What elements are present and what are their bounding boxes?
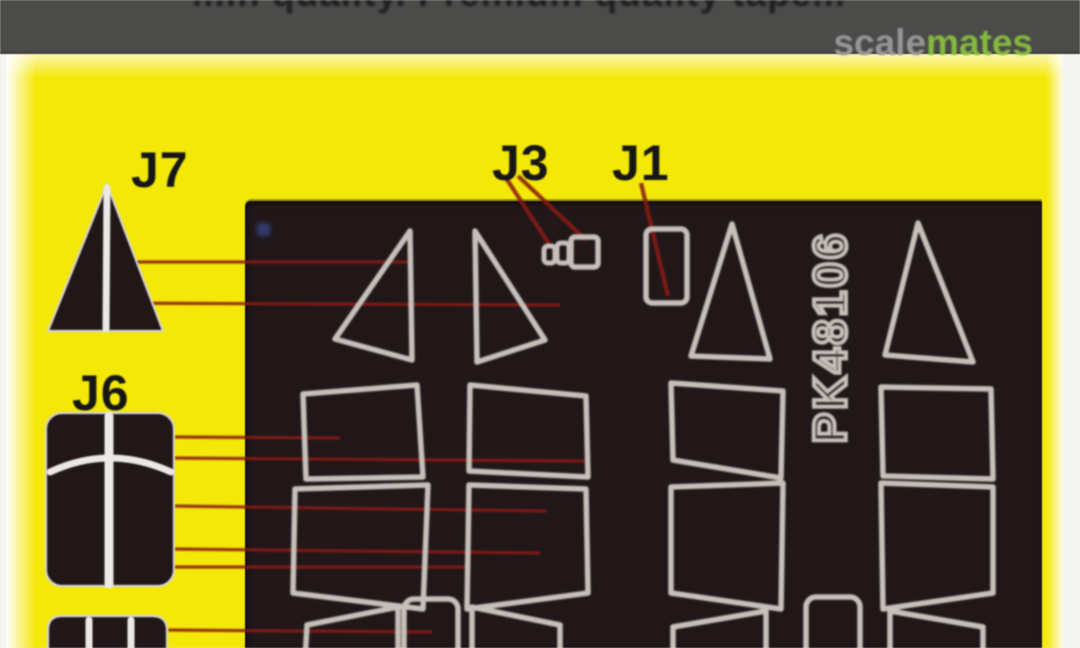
cropped-caption-text: ...in quality. Premium quality tape... [192,0,846,15]
masking-sheet-instruction-image: ...in quality. Premium quality tape... s… [0,0,1080,648]
label-j1: J1 [612,134,670,192]
label-j7: J7 [131,141,189,199]
label-j3: J3 [492,134,550,192]
sheet-part-number: PK48106 [803,211,849,463]
scalemates-watermark: scalemates [833,22,1033,64]
watermark-prefix: scale [833,22,926,63]
dark-mask-sheet [245,201,1042,648]
label-j6: J6 [72,364,130,422]
watermark-suffix: mates [926,22,1033,63]
